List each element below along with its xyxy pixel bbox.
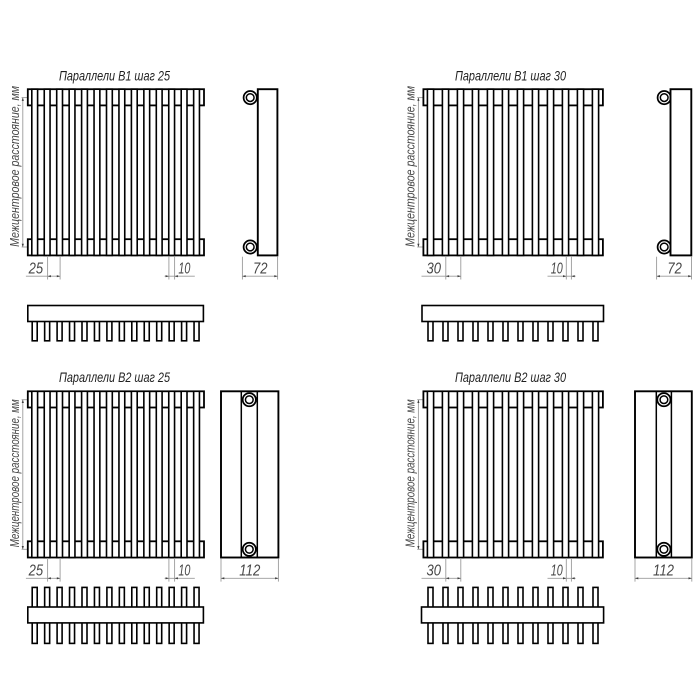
svg-text:30: 30 bbox=[427, 261, 442, 278]
svg-text:Межцентровое расстояние, мм: Межцентровое расстояние, мм bbox=[8, 86, 22, 247]
svg-text:Параллели В2 шаг 25: Параллели В2 шаг 25 bbox=[59, 369, 170, 385]
svg-text:72: 72 bbox=[667, 261, 682, 278]
svg-text:Параллели В1 шаг 25: Параллели В1 шаг 25 bbox=[59, 67, 170, 83]
svg-text:10: 10 bbox=[178, 261, 190, 278]
svg-text:Межцентровое расстояние, мм: Межцентровое расстояние, мм bbox=[8, 399, 22, 547]
svg-text:25: 25 bbox=[28, 261, 43, 278]
svg-text:112: 112 bbox=[239, 563, 260, 580]
svg-text:30: 30 bbox=[427, 563, 442, 580]
svg-text:25: 25 bbox=[28, 563, 43, 580]
svg-text:10: 10 bbox=[551, 261, 563, 278]
svg-text:10: 10 bbox=[178, 563, 190, 580]
svg-text:112: 112 bbox=[653, 563, 674, 580]
svg-text:Параллели В2 шаг 30: Параллели В2 шаг 30 bbox=[455, 369, 566, 385]
svg-text:Межцентровое расстояние, мм: Межцентровое расстояние, мм bbox=[404, 86, 418, 247]
svg-text:Межцентровое расстояние, мм: Межцентровое расстояние, мм bbox=[404, 399, 418, 547]
svg-text:Параллели В1 шаг 30: Параллели В1 шаг 30 bbox=[455, 67, 566, 83]
svg-text:10: 10 bbox=[551, 563, 563, 580]
svg-text:72: 72 bbox=[253, 261, 268, 278]
